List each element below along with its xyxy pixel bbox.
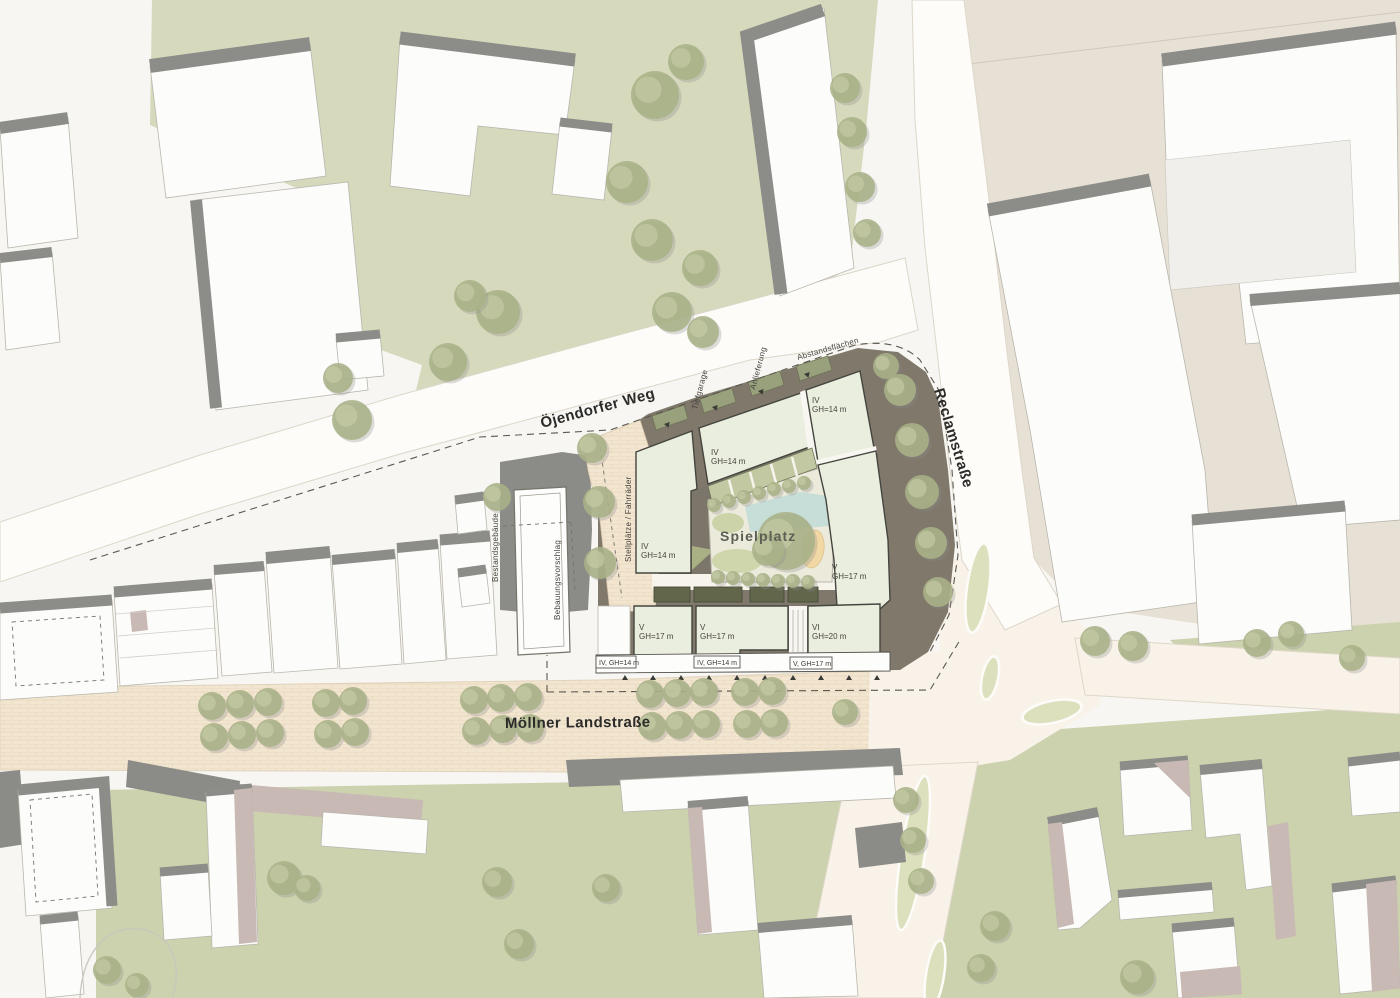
existing-building <box>1165 140 1356 290</box>
existing-building <box>214 566 272 676</box>
existing-building <box>455 496 487 534</box>
bestandsgebaeude-label: Bestandsgebäude <box>491 513 500 582</box>
existing-building <box>397 544 446 664</box>
stellplaetze-label: Stellplätze / Fahrräder <box>624 476 633 562</box>
existing-building <box>18 782 112 916</box>
setback-box-1: IV, GH=14 m <box>596 656 639 668</box>
existing-building <box>160 868 212 940</box>
roof-mauve-plane <box>1366 880 1400 992</box>
existing-building <box>0 252 60 350</box>
setback-label-2: IV, GH=14 m <box>697 660 737 667</box>
roof-mauve-plane <box>130 610 148 632</box>
existing-building <box>150 44 326 198</box>
street-label-moellner: Möllner Landstraße <box>505 714 651 732</box>
playground-label: Spielplatz <box>720 528 796 544</box>
setback-label-1: IV, GH=14 m <box>599 660 639 667</box>
existing-building-gray <box>855 822 906 868</box>
stair-gap <box>789 606 807 657</box>
existing-building <box>758 920 858 998</box>
setback-box-2: IV, GH=14 m <box>694 656 740 668</box>
existing-building <box>1348 756 1400 816</box>
setback-label-3: V, GH=17 m <box>793 661 831 668</box>
existing-building <box>0 118 78 248</box>
existing-building <box>458 569 490 607</box>
existing-building <box>332 554 402 669</box>
existing-building <box>266 552 338 673</box>
existing-building <box>40 916 84 998</box>
existing-building <box>1192 506 1352 644</box>
setback-box-3: V, GH=17 m <box>790 657 832 669</box>
bebauungsvorschlag-label: Bebauungsvorschlag <box>553 540 562 620</box>
existing-building <box>0 600 118 700</box>
existing-building <box>552 122 612 200</box>
site-plan: IV, GH=14 m IV, GH=14 m V, GH=17 m Öjend… <box>0 0 1400 998</box>
setback-strip <box>596 652 890 673</box>
proposed-strip-west <box>598 606 630 656</box>
